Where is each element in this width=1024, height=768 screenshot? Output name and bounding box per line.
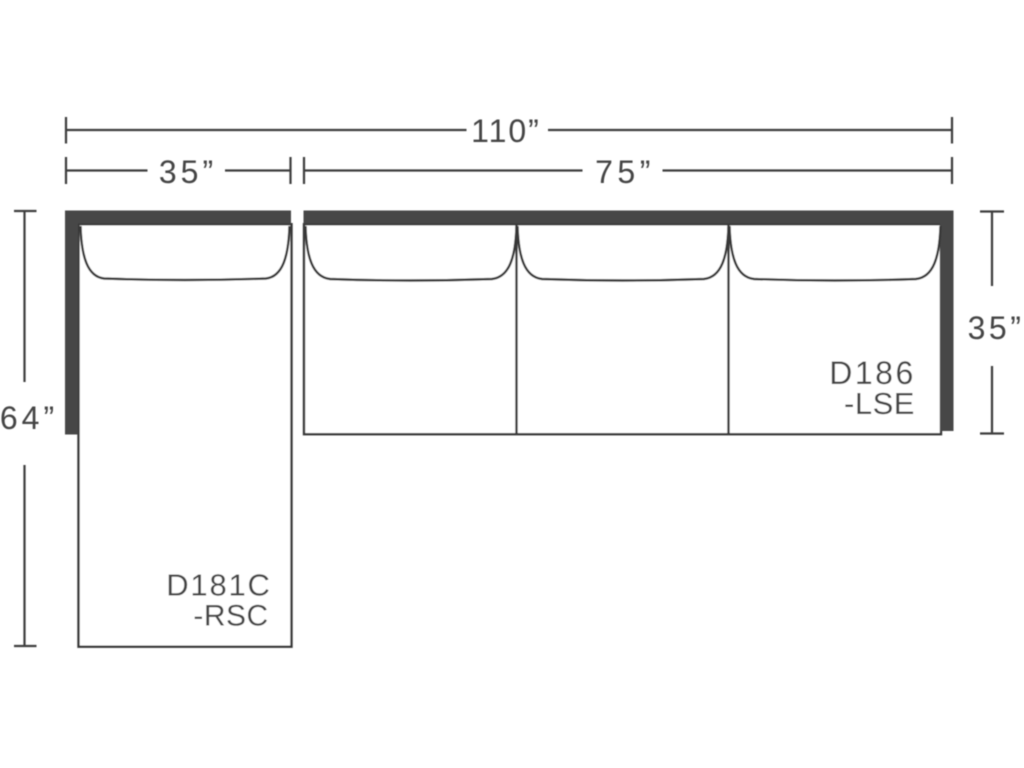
svg-text:35”: 35” (159, 154, 217, 190)
svg-text:110”: 110” (471, 113, 541, 149)
svg-text:-RSC: -RSC (193, 600, 268, 633)
svg-text:35”: 35” (968, 310, 1024, 346)
svg-text:64”: 64” (0, 400, 58, 436)
svg-text:-LSE: -LSE (844, 386, 915, 421)
svg-text:75”: 75” (595, 154, 655, 190)
svg-text:D181C: D181C (166, 568, 272, 603)
